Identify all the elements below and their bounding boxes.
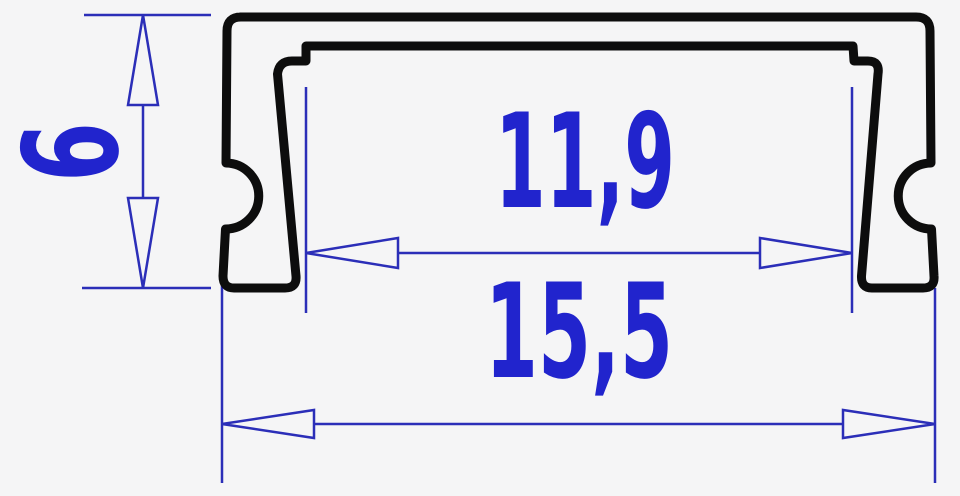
outer-width-dimension-label: 15,5 bbox=[485, 255, 673, 408]
inner-width-dimension-label: 11,9 bbox=[495, 85, 675, 238]
technical-drawing: 6 11,9 15,5 bbox=[0, 0, 960, 496]
drawing-canvas: 6 11,9 15,5 bbox=[0, 0, 960, 496]
height-dimension-label: 6 bbox=[0, 122, 148, 182]
